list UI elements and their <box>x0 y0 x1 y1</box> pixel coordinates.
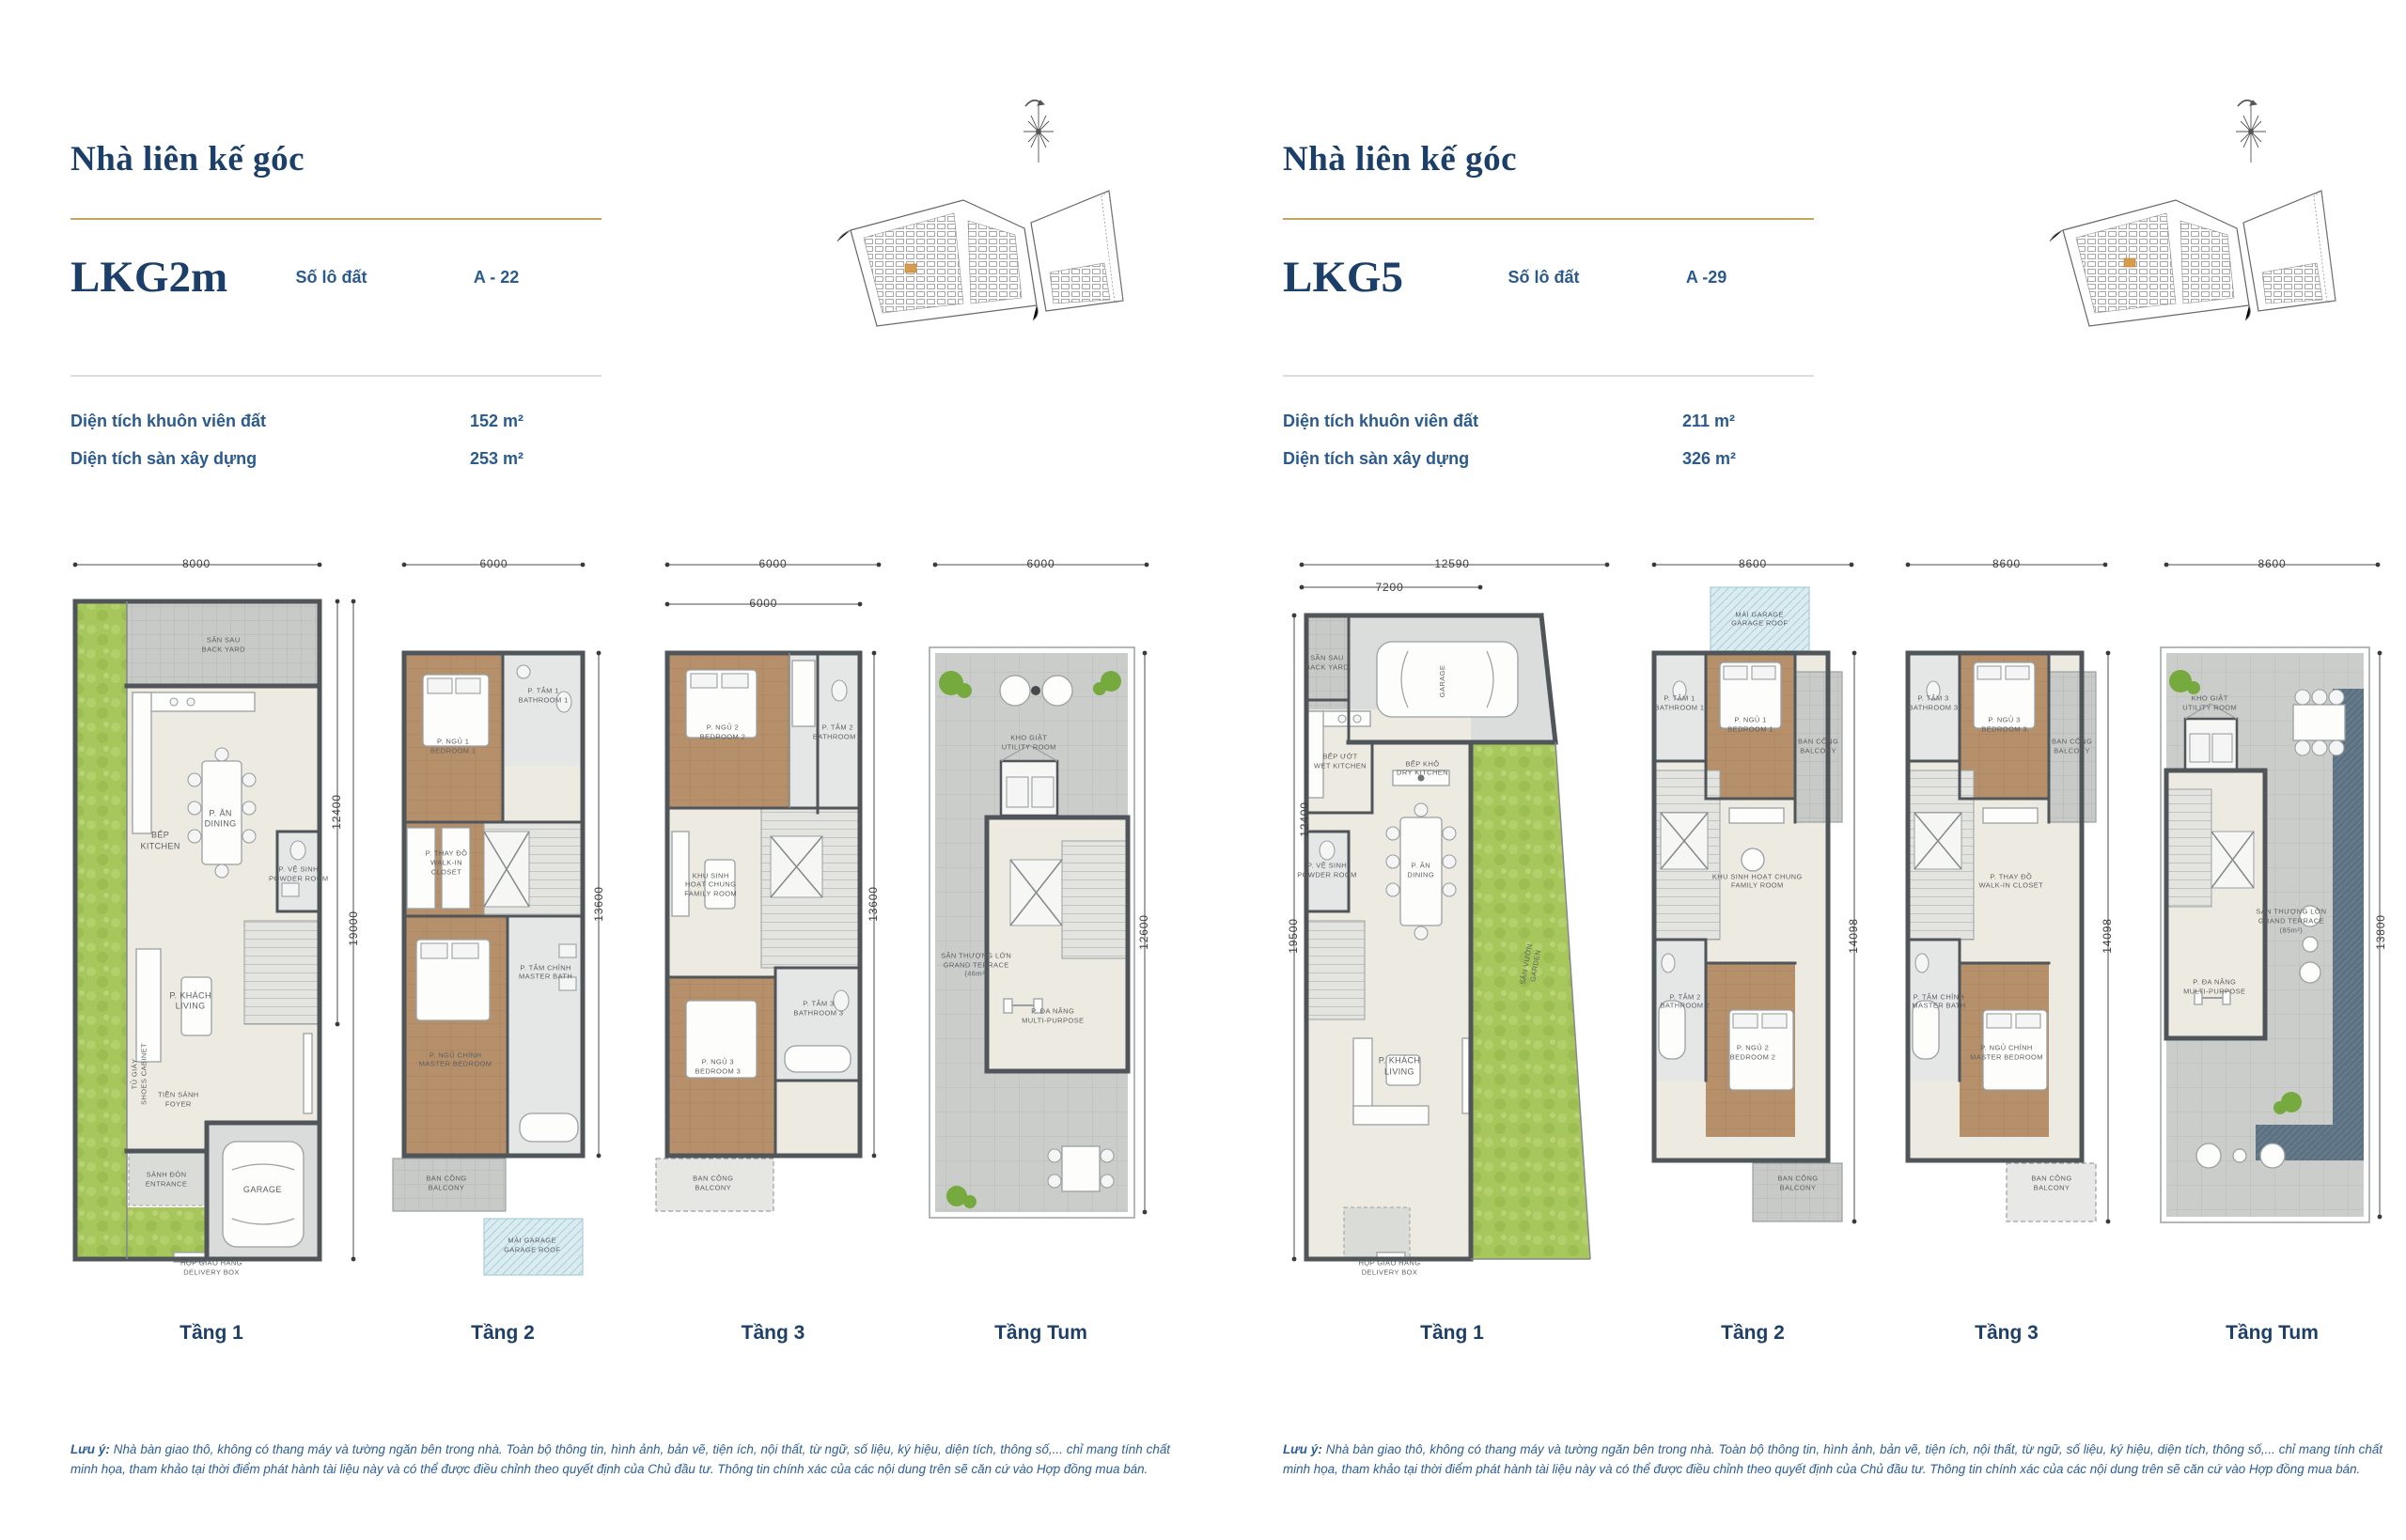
panel-lkg5: Nhà liên kế góc LKG5 Số lô đất A -29 Diệ… <box>1283 0 2397 1540</box>
lot-number-label: Số lô đất <box>295 268 469 288</box>
floorplan-lkg5-tangtum: 860013800KHO GIẶTUTILITY ROOMSÂN THƯỢNG … <box>2152 550 2392 1377</box>
site-map <box>2035 80 2364 371</box>
floor-label-tangtum: Tầng Tum <box>2152 1322 2392 1345</box>
spec-land-area-value: 152 m² <box>470 412 523 430</box>
page-title: Nhà liên kế góc <box>70 139 305 179</box>
site-map <box>822 80 1151 371</box>
disclaimer-note: Lưu ý: Nhà bàn giao thô, không có thang … <box>70 1440 1170 1480</box>
model-code: LKG5 <box>1283 252 1504 303</box>
compass-icon <box>2236 101 2266 163</box>
compass-icon <box>1023 101 1054 163</box>
floor-label-tang3: Tầng 3 <box>653 1322 893 1345</box>
spec-floor-area-value: 326 m² <box>1682 449 1736 468</box>
spec-land-area-value: 211 m² <box>1682 412 1735 430</box>
model-row: LKG2m Số lô đất A - 22 <box>70 252 728 308</box>
brochure-page: Nhà liên kế góc LKG2m Số lô đất A - 22 D… <box>0 0 2406 1540</box>
spec-floor-area: Diện tích sàn xây dựng 326 m² <box>1283 449 1941 469</box>
site-outline <box>837 191 1123 326</box>
floorplans-row: 80001240019000SÂN SAUBACK YARDBẾPKITCHEN… <box>70 550 1184 1377</box>
floorplan-lkg2m-tangtum: 600012600KHO GIẶTUTILITY ROOMSÂN THƯỢNG … <box>921 550 1161 1377</box>
floorplans-row: 1259072001240019500SÂN SAUBACK YARDGARAG… <box>1283 550 2397 1377</box>
floor-label-tang1: Tầng 1 <box>61 1322 362 1345</box>
page-title: Nhà liên kế góc <box>1283 139 1517 179</box>
model-row: LKG5 Số lô đất A -29 <box>1283 252 1941 308</box>
divider <box>70 375 601 377</box>
lot-number-value: A - 22 <box>474 268 519 288</box>
spec-floor-area: Diện tích sàn xây dựng 253 m² <box>70 449 728 469</box>
site-outline <box>2050 191 2336 326</box>
floor-label-tang2: Tầng 2 <box>1640 1322 1866 1345</box>
model-code: LKG2m <box>70 252 291 303</box>
highlighted-lot <box>2124 258 2135 267</box>
spec-floor-area-value: 253 m² <box>470 449 523 468</box>
floorplan-lkg5-tang3: 860014098P. TẮM 3BATHROOM 3P. NGỦ 3BEDRO… <box>1894 550 2119 1377</box>
panel-lkg2m: Nhà liên kế góc LKG2m Số lô đất A - 22 D… <box>70 0 1184 1540</box>
floorplan-lkg2m-tang3: 6000600013600P. NGỦ 2BEDROOM 2P. TẮM 2BA… <box>653 550 893 1377</box>
floor-label-tang2: Tầng 2 <box>390 1322 616 1345</box>
floorplan-lkg2m-tang2: 600013600P. NGỦ 1BEDROOM 1P. TẮM 1BATHRO… <box>390 550 616 1377</box>
floorplan-lkg2m-tang1: 80001240019000SÂN SAUBACK YARDBẾPKITCHEN… <box>61 550 362 1377</box>
highlighted-lot <box>905 264 916 272</box>
disclaimer-note: Lưu ý: Nhà bàn giao thô, không có thang … <box>1283 1440 2383 1480</box>
gold-divider <box>70 218 601 220</box>
divider <box>1283 375 1814 377</box>
gold-divider <box>1283 218 1814 220</box>
lot-number-label: Số lô đất <box>1508 268 1681 288</box>
spec-land-area: Diện tích khuôn viên đất 211 m² <box>1283 412 1941 431</box>
floor-label-tang1: Tầng 1 <box>1288 1322 1617 1345</box>
floor-label-tang3: Tầng 3 <box>1894 1322 2119 1345</box>
spec-land-area: Diện tích khuôn viên đất 152 m² <box>70 412 728 431</box>
floorplan-lkg5-tang2: 860014098MÁI GARAGEGARAGE ROOFP. TẮM 1BA… <box>1640 550 1866 1377</box>
floor-label-tangtum: Tầng Tum <box>921 1322 1161 1345</box>
floorplan-lkg5-tang1: 1259072001240019500SÂN SAUBACK YARDGARAG… <box>1288 550 1617 1377</box>
lot-number-value: A -29 <box>1686 268 1726 288</box>
